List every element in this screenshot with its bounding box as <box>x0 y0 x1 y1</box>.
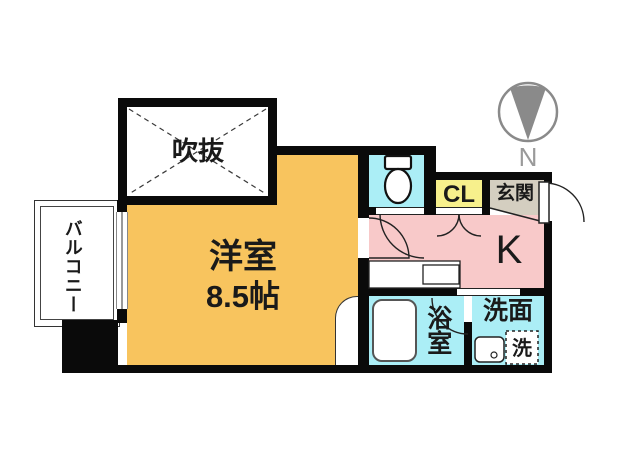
entrance-step-line <box>490 208 544 222</box>
kitchen-label: K <box>484 227 534 273</box>
closet-label: CL <box>436 181 482 209</box>
compass-label: N <box>508 143 548 173</box>
floor-plan: 吹抜 洋室 8.5帖 バルコニー CL 玄関 K 浴室 洗面 洗 N <box>0 0 640 455</box>
main-room-size: 8.5帖 <box>143 279 343 315</box>
fixtures-overlay <box>0 0 640 455</box>
void-label: 吹抜 <box>138 137 258 167</box>
entrance-door-icon <box>539 182 549 223</box>
bathtub-icon <box>373 300 416 361</box>
compass-needle-icon <box>510 86 546 141</box>
compass-icon <box>499 83 557 141</box>
washer-label: 洗 <box>506 338 538 361</box>
sink-icon <box>475 337 504 362</box>
balcony-label: バルコニー <box>62 212 83 320</box>
washroom-label: 洗面 <box>472 297 544 326</box>
entrance-label: 玄関 <box>490 183 540 205</box>
closet-door-arc-left <box>437 214 459 236</box>
closet-door-arc-right <box>459 214 481 236</box>
kitchen-counter-icon <box>369 261 460 288</box>
main-room-label: 洋室 <box>143 238 343 277</box>
toilet-icon <box>385 156 411 203</box>
bathroom-label: 浴室 <box>423 301 452 359</box>
entrance-door-arc <box>545 183 584 222</box>
